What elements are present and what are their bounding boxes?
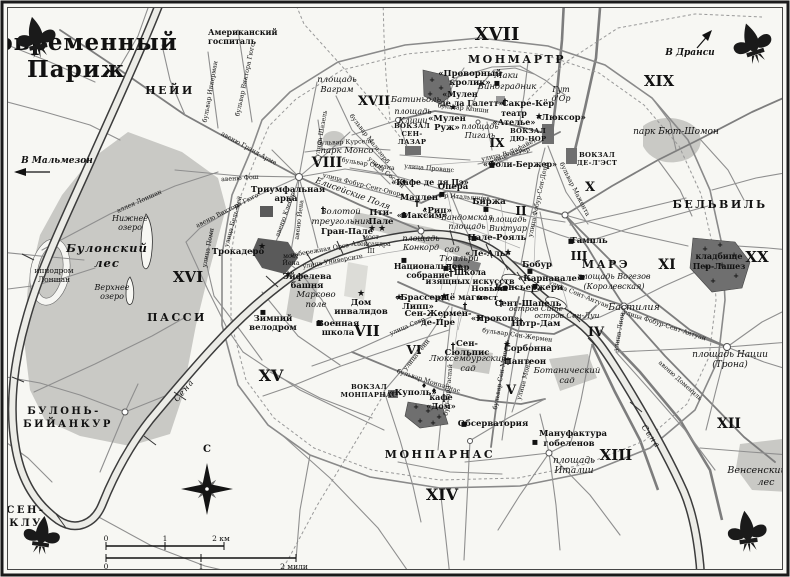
arrondissement-number: XIII xyxy=(600,446,633,464)
landmark-label: ипподром xyxy=(34,266,73,275)
station-label: СЕН- xyxy=(401,130,422,138)
paris-city-map: ★★★★★★★★★★★★■■■■■■■■■■■■■■■■■†††††††††♦♦… xyxy=(0,0,790,577)
street-label: авеню Фош xyxy=(221,174,259,184)
street-label: мост xyxy=(283,253,299,260)
area-label: Пигаль xyxy=(464,131,495,140)
street-label: III xyxy=(367,248,375,255)
station-label: ВОКЗАЛ xyxy=(510,127,546,135)
street-label: мост xyxy=(363,234,379,241)
area-label: Булонский xyxy=(65,241,148,255)
landmark-label: инвалидов xyxy=(334,307,388,317)
area-label: поле xyxy=(305,300,326,310)
station-label: ВОКЗАЛ xyxy=(579,151,615,159)
landmark-label: «Дом» xyxy=(426,401,455,411)
area-label: озеро xyxy=(100,292,124,301)
arrondissement-number: XV xyxy=(259,366,284,385)
area-label: Гут xyxy=(551,85,570,94)
grave-symbol-icon: + xyxy=(417,417,423,425)
station-label: ДЕ-Л'ЭСТ xyxy=(577,159,617,167)
arrondissement-number: XIV xyxy=(426,485,459,504)
grave-symbol-icon: + xyxy=(413,403,419,411)
landmark-label: Мадлен xyxy=(400,193,438,203)
district-label: СЕН- xyxy=(6,505,45,516)
station-label: ЛАЗАР xyxy=(398,138,427,146)
arrondissement-number: XX xyxy=(745,248,769,266)
arrondissement-number: XIX xyxy=(644,72,675,90)
area-label: площадь Вогезов xyxy=(577,272,650,281)
area-label: Марсово xyxy=(295,290,335,300)
area-label: Ботанический xyxy=(533,366,601,376)
landmark-label: Сент-Шапель xyxy=(495,299,562,309)
arrondissement-number: XI xyxy=(658,257,675,273)
paris-map-frame: ★★★★★★★★★★★★■■■■■■■■■■■■■■■■■†††††††††♦♦… xyxy=(0,0,790,577)
compass-rose-icon xyxy=(181,463,233,515)
area-label: площадь Нации xyxy=(692,350,768,360)
gare-de-lest-block xyxy=(566,148,577,164)
grave-symbol-icon: + xyxy=(429,76,435,84)
landmark-label: Пале-Рояль xyxy=(468,233,527,243)
arrondissement-number: X xyxy=(585,180,596,195)
station-label: ВОКЗАЛ xyxy=(394,122,430,130)
landmark-label: гобеленов xyxy=(543,438,594,449)
landmark-label: «Риц» xyxy=(422,206,452,216)
area-label: д'Ор xyxy=(552,94,571,103)
street-label: улица Прованс xyxy=(404,163,455,174)
landmark-label: велодром xyxy=(249,323,297,333)
landmark-label: Тампль xyxy=(570,236,607,246)
grave-symbol-icon: + xyxy=(436,413,442,421)
street-label: Александра xyxy=(351,241,391,248)
fleur-de-lis-icon xyxy=(725,508,769,555)
area-label: Италии xyxy=(553,466,593,476)
district-label: МОНМАРТР xyxy=(468,53,566,66)
area-label: (Королевская) xyxy=(584,282,645,291)
landmark-label: Мануфактура xyxy=(539,429,608,439)
street-label: авеню Гранд-Арме xyxy=(220,131,278,167)
landmark-label: Лоншан xyxy=(38,275,70,284)
landmark-label: собрание xyxy=(406,270,449,280)
landmark-label: Пер-Лашез xyxy=(693,261,746,271)
area-label: Ваграм xyxy=(319,85,353,95)
area-label: Виктуар xyxy=(488,224,527,233)
direction-label: В Мальмезон xyxy=(20,156,93,166)
landmark-label: Бобур xyxy=(522,259,552,270)
area-label: озеро xyxy=(118,223,142,232)
arrondissement-number: V xyxy=(505,383,517,398)
area-label: площадь xyxy=(448,222,485,231)
street-label: бульвар Инкерман xyxy=(202,60,220,123)
landmark-label: «Прокоп» xyxy=(471,314,519,324)
landmark-label: Пале xyxy=(369,217,395,227)
arrondissement-number: XVII xyxy=(475,24,520,45)
square-symbol-icon: ■ xyxy=(532,438,538,446)
area-label: лес xyxy=(758,477,776,488)
landmark-label: Сюльпис xyxy=(445,348,490,358)
landmark-label: кладбище xyxy=(696,251,743,261)
district-label: БИЙАНКУР xyxy=(23,417,113,430)
arrondissement-number: XVI xyxy=(173,268,203,286)
area-label: треугольник xyxy=(311,217,371,227)
district-label: МОНПАРНАС xyxy=(385,448,495,461)
station-label: МОНПАРНАС xyxy=(341,391,398,399)
district-label: НЕЙИ xyxy=(145,82,195,97)
landmark-label: Обсерватория xyxy=(458,418,528,429)
landmark-label: «Люксор» xyxy=(536,113,586,123)
landmark-label: школа xyxy=(322,328,355,338)
area-label: (Трона) xyxy=(712,359,748,370)
landmark-label: Трокадеро xyxy=(212,247,265,257)
area-label: Венсенский xyxy=(726,465,786,476)
drancy-arrow-icon xyxy=(697,30,712,48)
landmark-label: де-Пре xyxy=(421,318,456,328)
area-label: Верхнее xyxy=(94,283,130,292)
grave-symbol-icon: + xyxy=(710,277,716,285)
area-label: Нижнее xyxy=(111,214,148,223)
street-label: Йена xyxy=(282,259,299,267)
arrondissement-number: XII xyxy=(717,416,741,432)
area-label: сад xyxy=(460,364,476,374)
arrondissement-number: III xyxy=(571,249,588,263)
district-label: БУЛОНЬ- xyxy=(27,406,101,417)
area-label: Золотой xyxy=(321,207,361,217)
area-label: парк Монсо xyxy=(320,146,373,156)
area-label: Батиньоль xyxy=(390,95,442,105)
area-label: площадь xyxy=(402,234,439,243)
district-label: МАРЭ xyxy=(582,258,630,271)
station-label: ВОКЗАЛ xyxy=(351,383,387,391)
area-label: площадь xyxy=(317,75,357,85)
street-label: бульвар Сен-Мишель xyxy=(492,339,511,410)
grave-symbol-icon: + xyxy=(733,272,739,280)
street-label: бульвар Виктора Гюго xyxy=(234,42,256,117)
area-label: Конкорд xyxy=(402,243,439,252)
street-label: улица Лион xyxy=(613,312,627,352)
grave-symbol-icon: + xyxy=(430,419,436,427)
arrondissement-number: XVII xyxy=(358,94,390,109)
grave-symbol-icon: + xyxy=(717,241,723,249)
landmark-label: башня xyxy=(291,280,324,291)
landmark-label: кролик» xyxy=(449,78,491,88)
scale-label: 2 км xyxy=(212,534,230,543)
direction-label: В Дранси xyxy=(664,48,715,58)
street-label: авеню Домениль xyxy=(657,360,704,403)
gare-saint-lazare-block xyxy=(405,146,421,155)
area-label: площадь xyxy=(394,107,431,116)
street-label: улица Фобур-Сент-Антуан xyxy=(622,309,707,342)
area-label: парк Бют-Шомон xyxy=(633,127,719,137)
landmark-label: Руж» xyxy=(434,123,460,133)
area-label: площадь xyxy=(553,456,595,466)
area-label: сад xyxy=(559,376,575,386)
landmark-label: Сорбонна xyxy=(504,343,552,354)
arrondissement-number: IV xyxy=(588,325,605,340)
scale-label: 0 xyxy=(104,534,109,543)
area-label: лес xyxy=(94,256,120,270)
compass-north-label: С xyxy=(203,444,211,455)
fleur-de-lis-icon xyxy=(727,17,777,69)
scale-bar xyxy=(106,542,296,562)
map-title: Париж xyxy=(27,56,125,83)
street-label: авеню Йена xyxy=(293,199,306,240)
area-label: площадь xyxy=(489,215,526,224)
landmark-label: «Ле-Аль» xyxy=(465,249,511,259)
district-label: ПАССИ xyxy=(147,311,207,324)
landmark-label: «Ателье» xyxy=(493,117,536,127)
scale-label: 1 xyxy=(163,534,168,543)
malmaison-arrow-icon xyxy=(14,168,50,176)
district-label: БЕЛЬВИЛЬ xyxy=(672,198,767,211)
museum-block xyxy=(260,206,273,217)
